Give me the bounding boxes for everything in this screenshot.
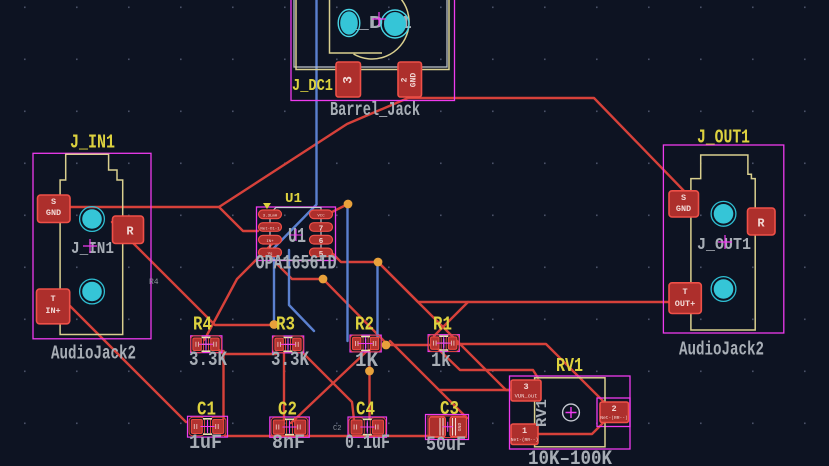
- svg-text:AudioJack2: AudioJack2: [679, 339, 764, 361]
- svg-text:R: R: [126, 225, 134, 239]
- svg-text:1k: 1k: [431, 350, 451, 373]
- svg-text:VUN_out: VUN_out: [515, 394, 538, 400]
- svg-text:IN+: IN+: [266, 240, 274, 244]
- svg-text:3.3K: 3.3K: [189, 349, 227, 372]
- svg-text:OPA1656ID: OPA1656ID: [256, 253, 337, 276]
- svg-text:J_OUT1: J_OUT1: [697, 236, 751, 255]
- svg-text:R4: R4: [193, 314, 212, 336]
- svg-text:GND: GND: [457, 423, 463, 432]
- svg-text:C2: C2: [278, 399, 297, 421]
- svg-text:50uF: 50uF: [426, 434, 466, 457]
- svg-text:GND: GND: [46, 208, 61, 218]
- svg-text:3: 3: [523, 382, 528, 392]
- svg-text:6: 6: [319, 238, 324, 246]
- svg-text:2: 2: [611, 404, 616, 414]
- svg-text:Net-(RR--): Net-(RR--): [511, 437, 539, 443]
- svg-text:R1: R1: [433, 314, 452, 336]
- svg-text:1uF: 1uF: [189, 432, 222, 455]
- svg-text:J_IN1: J_IN1: [71, 240, 114, 259]
- svg-text:C3: C3: [440, 398, 459, 420]
- svg-text:2: 2: [401, 77, 410, 82]
- svg-text:GND: GND: [676, 204, 691, 214]
- svg-text:VCC: VCC: [317, 215, 325, 219]
- svg-text:RV1: RV1: [556, 355, 583, 377]
- svg-text:0.1uF: 0.1uF: [345, 432, 390, 455]
- svg-text:U1: U1: [285, 191, 302, 207]
- svg-text:7: 7: [319, 226, 324, 234]
- svg-text:IN+: IN+: [45, 306, 60, 316]
- svg-text:RV1: RV1: [534, 399, 551, 427]
- svg-text:U1: U1: [288, 226, 306, 249]
- svg-text:OUT+: OUT+: [675, 299, 695, 309]
- svg-text:8nF: 8nF: [272, 432, 305, 455]
- svg-text:J_IN1: J_IN1: [70, 132, 115, 154]
- svg-text:AudioJack2: AudioJack2: [51, 343, 136, 365]
- svg-text:S: S: [681, 193, 686, 203]
- svg-text:C1: C1: [197, 399, 216, 421]
- svg-text:T: T: [682, 287, 687, 297]
- svg-text:S: S: [51, 197, 56, 207]
- svg-text:Net-(RR--): Net-(RR--): [600, 415, 628, 421]
- svg-text:C2: C2: [333, 425, 341, 433]
- svg-text:GND: GND: [410, 73, 419, 88]
- svg-text:Barrel_Jack: Barrel_Jack: [330, 99, 420, 121]
- svg-text:T: T: [50, 294, 55, 304]
- svg-text:1: 1: [522, 426, 527, 436]
- svg-text:Net-D1-1: Net-D1-1: [260, 227, 280, 231]
- svg-text:3.3LmH: 3.3LmH: [263, 215, 278, 219]
- svg-text:3.3K: 3.3K: [271, 349, 309, 372]
- svg-text:C4: C4: [356, 399, 375, 421]
- svg-text:10K–100K: 10K–100K: [528, 448, 612, 466]
- svg-text:R3: R3: [276, 314, 295, 336]
- svg-text:R2: R2: [355, 314, 374, 336]
- svg-text:J_OUT1: J_OUT1: [697, 127, 750, 149]
- svg-text:1K: 1K: [355, 350, 378, 373]
- svg-text:J_DC1: J_DC1: [292, 77, 333, 96]
- svg-text:R: R: [757, 217, 765, 231]
- svg-text:3: 3: [341, 76, 356, 84]
- svg-text:R4: R4: [149, 278, 159, 287]
